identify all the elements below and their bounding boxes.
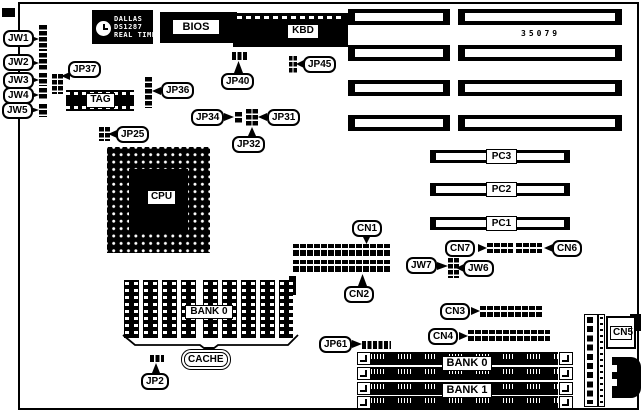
clock-hand: [103, 28, 108, 30]
jw3-pins: [39, 73, 47, 86]
isa-slot-3a: [348, 80, 450, 96]
rtc-line1: DALLAS: [114, 15, 156, 23]
label-jp36: JP36: [161, 82, 194, 99]
label-jp2: JP2: [141, 373, 169, 390]
jp36-pins: [145, 77, 152, 108]
label-cn6: CN6: [552, 240, 582, 257]
jp2-pins: [150, 355, 164, 362]
simm-bank0-label: BANK 0: [442, 356, 492, 371]
label-jp61: JP61: [319, 336, 352, 353]
simm-bank1-label: BANK 1: [442, 383, 492, 398]
cache-label: CACHE: [184, 352, 228, 367]
jw4-pins: [39, 88, 47, 100]
cn6-header: [516, 243, 542, 253]
jw1-pins: [39, 25, 47, 51]
rtc-line3: REAL TIME: [114, 31, 156, 39]
jp31-pins: [246, 109, 258, 126]
isa-slot-2b: [458, 45, 622, 61]
pc1-label: PC1: [486, 216, 517, 231]
label-jp37: JP37: [68, 61, 101, 78]
kbd-pins: [237, 16, 344, 19]
label-jw1: JW1: [3, 30, 34, 47]
rtc-chip: DALLAS DS1287 REAL TIME: [92, 10, 153, 44]
isa-slot-3b: [458, 80, 622, 96]
jw5-pins: [39, 104, 47, 117]
cache-chip-1: [124, 280, 139, 338]
label-cn5: CN5: [610, 326, 632, 340]
label-jp34: JP34: [191, 109, 224, 126]
jw2-pins: [39, 53, 47, 71]
isa-slot-4a: [348, 115, 450, 131]
jp45-pins: [289, 56, 297, 73]
jp34-pins: [235, 112, 242, 124]
pc1-slot: PC1: [430, 217, 570, 230]
label-cn7: CN7: [445, 240, 475, 257]
label-jw2: JW2: [3, 54, 34, 71]
label-jp45: JP45: [303, 56, 336, 73]
label-jp32: JP32: [232, 136, 265, 153]
bios-label: BIOS: [172, 19, 220, 35]
label-cn3: CN3: [440, 303, 470, 320]
isa-slot-2a: [348, 45, 450, 61]
keyboard-din-connector: [612, 357, 641, 398]
label-jp31: JP31: [267, 109, 300, 126]
tag-label: TAG: [86, 93, 115, 108]
label-jp40: JP40: [221, 73, 254, 90]
label-jw7: JW7: [406, 257, 437, 274]
isa-slot-1b: [458, 9, 622, 25]
isa-slot-1a: [348, 9, 450, 25]
cache-chip-3: [162, 280, 177, 338]
pc3-slot: PC3: [430, 150, 570, 163]
jp61-pins: [362, 341, 391, 349]
cache-chip-9: [279, 280, 293, 338]
edge-port: [2, 8, 15, 17]
cache-chip-2: [143, 280, 158, 338]
cn7-header: [487, 243, 513, 253]
isa-slot-4b: [458, 115, 622, 131]
jp40-pins: [232, 52, 247, 60]
jp37-pins: [52, 74, 63, 94]
cn3-header: [480, 306, 543, 317]
label-cn1: CN1: [352, 220, 382, 237]
cn5-connector: CN5: [606, 316, 636, 349]
cn2-header: [293, 260, 390, 272]
cn1-header: [293, 244, 390, 256]
pc3-label: PC3: [486, 149, 517, 164]
pc2-label: PC2: [486, 182, 517, 197]
pc2-slot: PC2: [430, 183, 570, 196]
cache-bank-label: BANK 0: [185, 305, 233, 319]
label-jw5: JW5: [2, 102, 33, 119]
cpu-label: CPU: [147, 190, 176, 205]
power-connector: [584, 314, 605, 407]
cache-chip-8: [260, 280, 275, 338]
label-jw6: JW6: [463, 260, 494, 277]
part-number: 35079: [521, 29, 560, 39]
motherboard-diagram: DALLAS DS1287 REAL TIME BIOS KBD 35079 J…: [0, 0, 643, 415]
rtc-line2: DS1287: [114, 23, 156, 31]
rtc-text: DALLAS DS1287 REAL TIME: [114, 15, 156, 39]
kbd-label: KBD: [287, 24, 319, 39]
cn4-header: [468, 330, 550, 341]
label-jp25: JP25: [116, 126, 149, 143]
label-cn4: CN4: [428, 328, 458, 345]
cache-chip-7: [241, 280, 256, 338]
label-cn2: CN2: [344, 286, 374, 303]
